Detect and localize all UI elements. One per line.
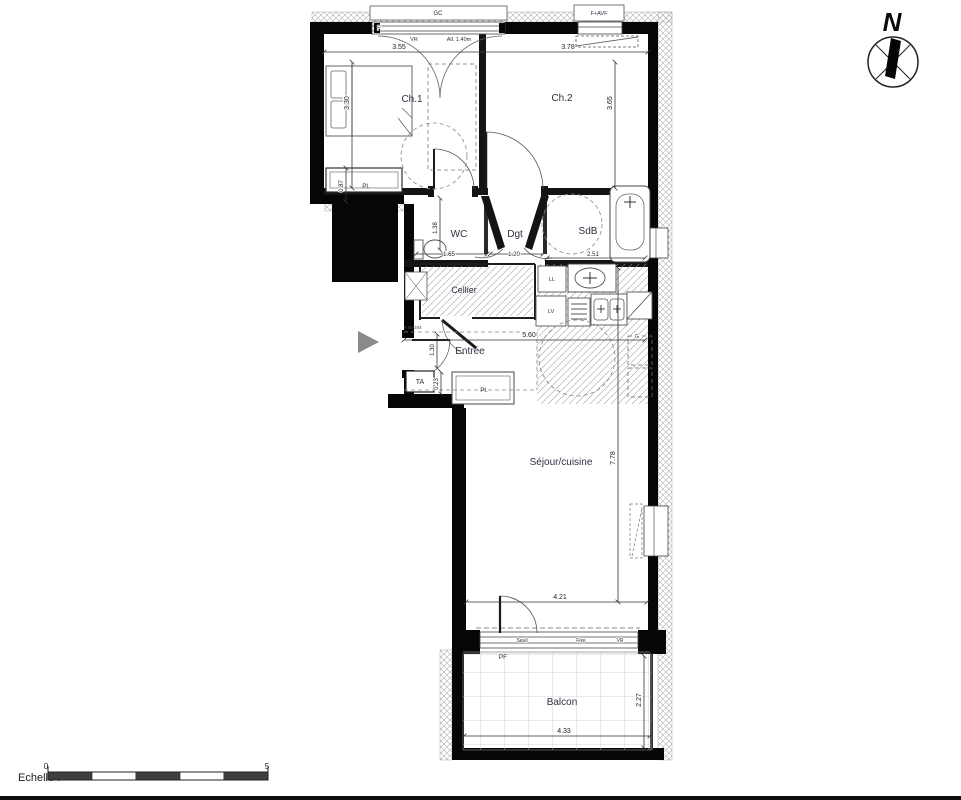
room-label-sdb: SdB — [579, 226, 598, 237]
label-vr-bay: VR — [617, 638, 624, 644]
dim-dgt-width: 1.20 — [508, 252, 520, 258]
dim-wc-height: 1.38 — [433, 222, 439, 234]
dim-ta-height: 0.23 — [434, 378, 440, 390]
pillow — [331, 71, 346, 98]
dim-sdb-width: 2.51 — [587, 252, 599, 258]
dim-balcon-width: 4.33 — [557, 728, 571, 735]
room-label-entree: Entrée — [455, 346, 485, 357]
room-label-sejour: Séjour/cuisine — [530, 457, 593, 468]
wardrobe-zone — [428, 64, 476, 170]
floor-plan-drawing: 3.55 3.78 3.30 3.65 0.87 1.38 1.65 1.20 … — [0, 0, 961, 800]
cooktop — [568, 298, 590, 326]
dim-ch2-width: 3.78 — [561, 44, 575, 51]
room-label-ch1: Ch.1 — [401, 94, 423, 105]
dim-closet-depth: 0.87 — [339, 180, 345, 192]
label-seuil: Seuil — [516, 638, 527, 644]
bay-window — [480, 632, 638, 648]
dim-sejour-width: 4.21 — [553, 594, 567, 601]
label-closet-entree: Pl. — [480, 387, 488, 394]
entrance-arrow-icon — [358, 331, 379, 353]
dim-ch1-height: 3.30 — [344, 96, 351, 110]
page-bottom-border — [0, 796, 961, 800]
label-ta: TA — [416, 379, 425, 386]
label-closet-ch1: Pl. — [362, 183, 370, 190]
label-washing-machine: LL — [549, 277, 555, 283]
floor-plan-page: 3.55 3.78 3.30 3.65 0.87 1.38 1.65 1.20 … — [0, 0, 961, 800]
north-label: N — [883, 7, 903, 37]
label-pf: PF — [499, 654, 507, 661]
turning-circle — [542, 194, 602, 254]
dim-balcon-height: 2.27 — [636, 693, 643, 707]
dim-ch1-width: 3.55 — [392, 44, 406, 51]
label-f-avf: F+AVF — [591, 11, 609, 17]
label-allege: All. 1.40m — [447, 37, 472, 43]
label-dishwasher: LV — [548, 309, 555, 315]
dim-sejour-height: 7.78 — [610, 451, 617, 465]
room-label-wc: WC — [451, 229, 468, 240]
label-g: G — [635, 334, 639, 340]
scale-min: 0 — [44, 762, 49, 771]
label-f-window: F — [377, 26, 381, 32]
label-vr-window: VR — [410, 37, 418, 43]
dim-ch2-height: 3.65 — [607, 96, 614, 110]
label-fixe: Fixe — [576, 638, 586, 644]
toilet-tank — [414, 240, 423, 259]
dim-wc-width: 1.65 — [443, 252, 455, 258]
room-label-cellier: Cellier — [451, 285, 477, 295]
room-label-balcon: Balcon — [547, 697, 578, 708]
north-compass-icon: N — [868, 7, 918, 87]
scale-max: 5 — [265, 762, 270, 771]
sejour-window — [644, 506, 668, 556]
room-label-dgt: Dgt — [507, 229, 523, 240]
dim-entree-height: 1.30 — [430, 344, 436, 356]
label-door-ref: P 80/204 — [404, 325, 422, 330]
dim-entree-width: 5.60 — [522, 332, 536, 339]
room-label-ch2: Ch.2 — [551, 93, 573, 104]
label-gc: GC — [434, 11, 444, 17]
scale-bar: Echelle : 0 5 — [18, 762, 270, 784]
